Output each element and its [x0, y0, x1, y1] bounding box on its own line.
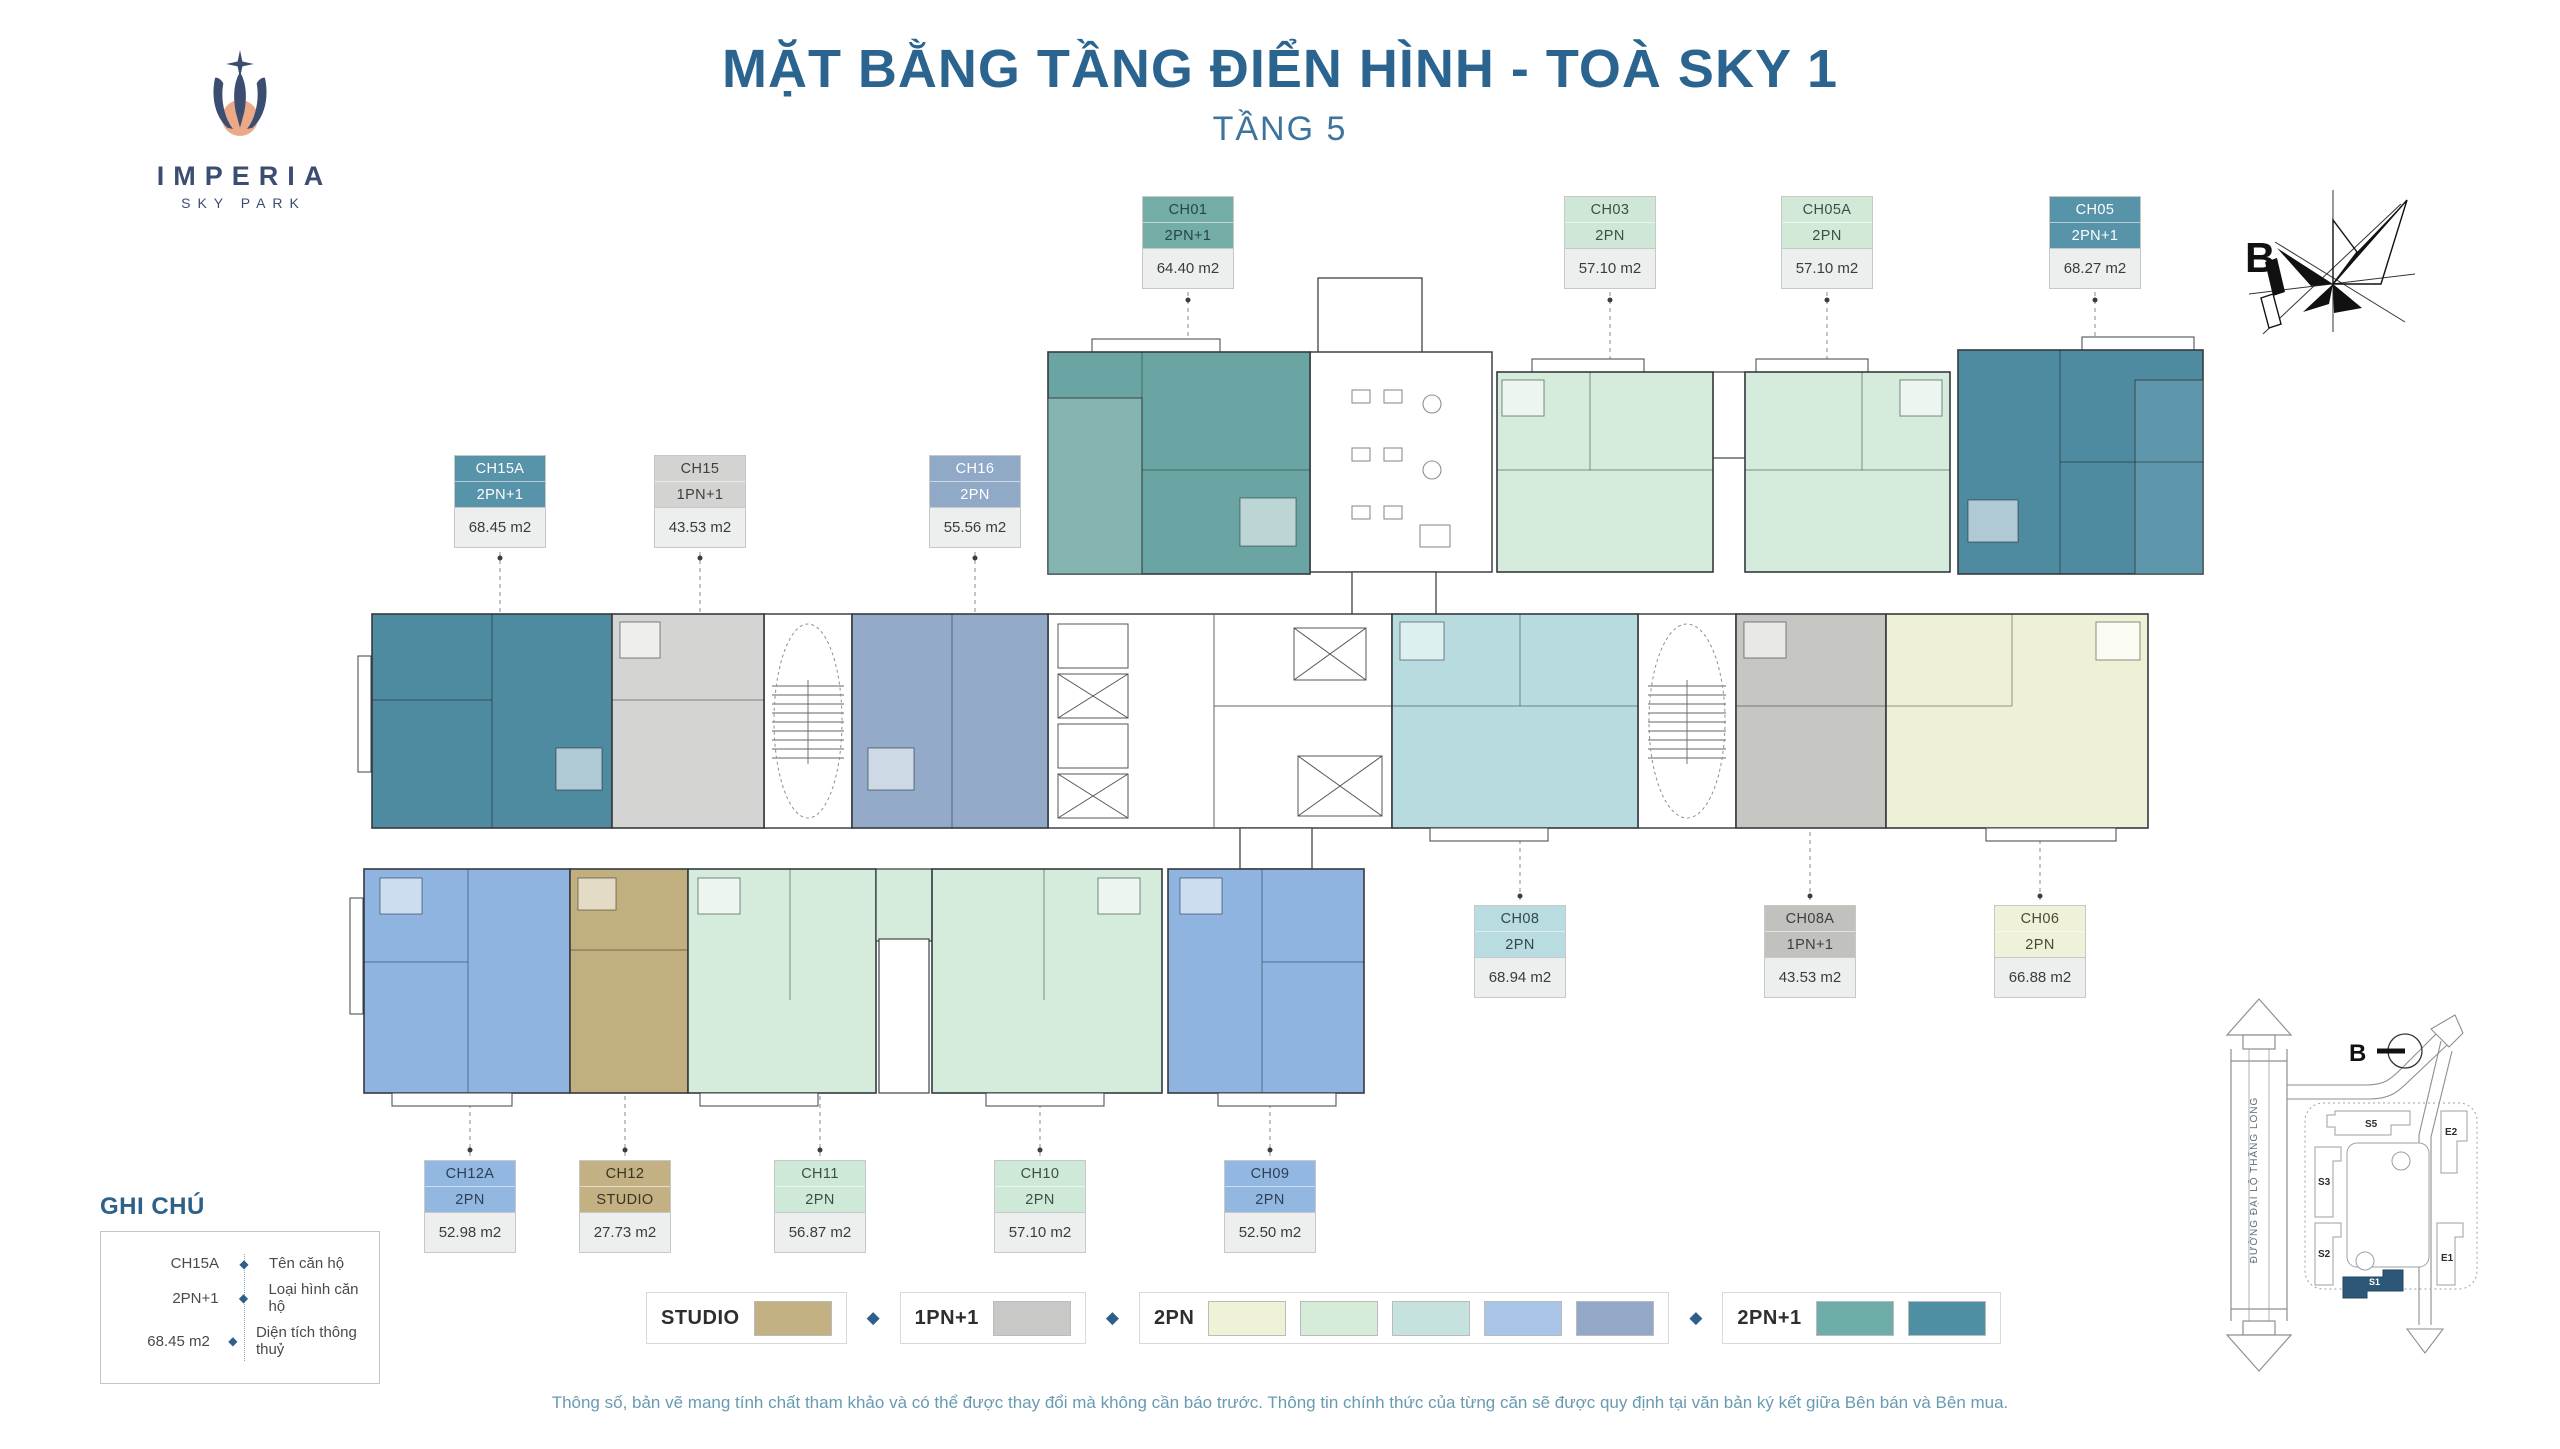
site-location-map: ĐƯỜNG ĐẠI LỘ THĂNG LONG B — [2205, 985, 2550, 1385]
color-swatch — [754, 1301, 832, 1336]
building-label-s3: S3 — [2318, 1177, 2331, 1188]
unit-label-ch08a: CH08A 1PN+1 43.53 m2 — [1764, 905, 1856, 998]
unit-code: CH06 — [1995, 906, 2085, 932]
plan-unit-ch15 — [612, 614, 764, 828]
unit-type: 2PN — [995, 1187, 1085, 1212]
plan-core-elevator-center — [1048, 614, 1392, 828]
unit-label-ch03: CH03 2PN 57.10 m2 — [1564, 196, 1656, 289]
legend-note-row: 2PN+1 ◆ Loại hình căn hộ — [101, 1281, 379, 1315]
legend-group-label: 1PN+1 — [915, 1307, 979, 1330]
unit-type: 2PN — [1782, 223, 1872, 248]
building-label-e2: E2 — [2445, 1127, 2458, 1138]
plan-core-stair-west — [764, 614, 852, 828]
unit-area: 52.98 m2 — [425, 1212, 515, 1252]
highlighted-building-s1: S1 — [2343, 1270, 2403, 1298]
plan-unit-ch05 — [1958, 337, 2203, 574]
note-key: 68.45 m2 — [101, 1333, 210, 1350]
compass-blades — [2265, 200, 2407, 313]
legend-note-title: GHI CHÚ — [100, 1193, 380, 1221]
unit-area: 57.10 m2 — [995, 1212, 1085, 1252]
legend-group-1pn1: 1PN+1 — [900, 1292, 1086, 1344]
unit-code: CH09 — [1225, 1161, 1315, 1187]
unit-type: 1PN+1 — [655, 482, 745, 507]
plan-corridor-bottom-center — [876, 869, 932, 1093]
unit-area: 52.50 m2 — [1225, 1212, 1315, 1252]
plan-notch-top — [1713, 372, 1745, 458]
unit-label-ch11: CH11 2PN 56.87 m2 — [774, 1160, 866, 1253]
plan-unit-ch08 — [1392, 614, 1638, 841]
unit-area: 68.45 m2 — [455, 507, 545, 547]
plan-unit-ch08a — [1736, 614, 1886, 828]
unit-area: 56.87 m2 — [775, 1212, 865, 1252]
building-label-s5: S5 — [2365, 1119, 2378, 1130]
plan-unit-ch01 — [1048, 339, 1310, 574]
note-label: Diện tích thông thuỷ — [256, 1324, 379, 1358]
unit-code: CH11 — [775, 1161, 865, 1187]
unit-label-ch01: CH01 2PN+1 64.40 m2 — [1142, 196, 1234, 289]
unit-area: 64.40 m2 — [1143, 248, 1233, 288]
unit-code: CH08 — [1475, 906, 1565, 932]
unit-type: 2PN — [1995, 932, 2085, 957]
plan-unit-ch09 — [1168, 869, 1364, 1106]
diamond-bullet-icon: ◆ — [219, 1291, 269, 1305]
unit-area: 57.10 m2 — [1565, 248, 1655, 288]
unit-area: 68.94 m2 — [1475, 957, 1565, 997]
plan-unit-ch16 — [852, 614, 1048, 828]
unit-label-ch15a: CH15A 2PN+1 68.45 m2 — [454, 455, 546, 548]
logo-subbrand-text: SKY PARK — [128, 195, 352, 211]
diamond-separator-icon: ◆ — [1689, 1308, 1702, 1328]
unit-label-ch05: CH05 2PN+1 68.27 m2 — [2049, 196, 2141, 289]
unit-code: CH05 — [2050, 197, 2140, 223]
title-block: MẶT BẰNG TẦNG ĐIỂN HÌNH - TOÀ SKY 1 TẦNG… — [0, 38, 2560, 149]
unit-area: 27.73 m2 — [580, 1212, 670, 1252]
plan-unit-ch12 — [570, 869, 688, 1093]
note-key: 2PN+1 — [101, 1290, 219, 1307]
legend-group-label: STUDIO — [661, 1307, 740, 1330]
unit-code: CH15 — [655, 456, 745, 482]
unit-area: 43.53 m2 — [1765, 957, 1855, 997]
note-label: Tên căn hộ — [269, 1255, 344, 1272]
unit-label-ch09: CH09 2PN 52.50 m2 — [1224, 1160, 1316, 1253]
diamond-separator-icon: ◆ — [1106, 1308, 1119, 1328]
color-swatch — [1576, 1301, 1654, 1336]
sitemap-compass-label: B — [2349, 1040, 2366, 1067]
plan-unit-ch12a — [350, 869, 570, 1106]
unit-type: 2PN — [1475, 932, 1565, 957]
unit-label-ch15: CH15 1PN+1 43.53 m2 — [654, 455, 746, 548]
diamond-bullet-icon: ◆ — [210, 1334, 256, 1348]
note-label: Loại hình căn hộ — [268, 1281, 379, 1315]
unit-code: CH10 — [995, 1161, 1085, 1187]
unit-type: 2PN+1 — [455, 482, 545, 507]
unit-type: 2PN+1 — [1143, 223, 1233, 248]
color-swatch — [1392, 1301, 1470, 1336]
unit-area: 66.88 m2 — [1995, 957, 2085, 997]
unit-type: 2PN — [425, 1187, 515, 1212]
plan-unit-ch06 — [1886, 614, 2148, 841]
unit-type: 2PN+1 — [2050, 223, 2140, 248]
color-swatch — [1484, 1301, 1562, 1336]
plan-unit-ch11 — [688, 869, 876, 1106]
plan-unit-ch03 — [1497, 359, 1713, 572]
building-label-s1: S1 — [2369, 1277, 2380, 1287]
unit-code: CH05A — [1782, 197, 1872, 223]
page-subtitle: TẦNG 5 — [0, 110, 2560, 149]
plan-core-stair-east — [1638, 614, 1736, 828]
unit-type: 1PN+1 — [1765, 932, 1855, 957]
unit-label-ch16: CH16 2PN 55.56 m2 — [929, 455, 1021, 548]
legend-note-box: CH15A ◆ Tên căn hộ 2PN+1 ◆ Loại hình căn… — [100, 1231, 380, 1384]
plan-unit-ch05a — [1745, 359, 1950, 572]
unit-label-ch05a: CH05A 2PN 57.10 m2 — [1781, 196, 1873, 289]
legend-note-row: CH15A ◆ Tên căn hộ — [101, 1255, 379, 1272]
compass-rose: B — [2235, 182, 2425, 337]
unit-type: 2PN — [930, 482, 1020, 507]
floor-plan-drawing — [300, 260, 2260, 1170]
diamond-separator-icon: ◆ — [867, 1308, 880, 1328]
legend-group-2pn1: 2PN+1 — [1722, 1292, 2000, 1344]
legend-group-label: 2PN — [1154, 1307, 1194, 1330]
color-swatch — [1208, 1301, 1286, 1336]
legend-group-label: 2PN+1 — [1737, 1307, 1801, 1330]
unit-type: 2PN — [1225, 1187, 1315, 1212]
legend-note: GHI CHÚ CH15A ◆ Tên căn hộ 2PN+1 ◆ Loại … — [100, 1193, 380, 1384]
color-swatch — [1908, 1301, 1986, 1336]
plan-core-top-lobby — [1310, 278, 1492, 572]
color-swatch — [1300, 1301, 1378, 1336]
color-legend: STUDIO ◆ 1PN+1 ◆ 2PN ◆ 2PN+1 — [646, 1292, 2001, 1344]
page-title: MẶT BẰNG TẦNG ĐIỂN HÌNH - TOÀ SKY 1 — [0, 38, 2560, 100]
color-swatch — [993, 1301, 1071, 1336]
plan-connector-bottom — [1240, 828, 1312, 869]
sitemap-compass: B — [2349, 1034, 2422, 1068]
unit-code: CH08A — [1765, 906, 1855, 932]
road-name-label: ĐƯỜNG ĐẠI LỘ THĂNG LONG — [2247, 1097, 2260, 1264]
building-label-e1: E1 — [2441, 1253, 2454, 1264]
unit-area: 57.10 m2 — [1782, 248, 1872, 288]
unit-area: 43.53 m2 — [655, 507, 745, 547]
logo-brand-text: IMPERIA — [128, 161, 352, 192]
unit-area: 55.56 m2 — [930, 507, 1020, 547]
unit-label-ch12: CH12 STUDIO 27.73 m2 — [579, 1160, 671, 1253]
disclaimer-text: Thông số, bản vẽ mang tính chất tham khả… — [0, 1393, 2560, 1413]
unit-code: CH16 — [930, 456, 1020, 482]
plan-unit-ch10 — [932, 869, 1162, 1106]
unit-label-ch10: CH10 2PN 57.10 m2 — [994, 1160, 1086, 1253]
legend-group-studio: STUDIO — [646, 1292, 847, 1344]
legend-group-2pn: 2PN — [1139, 1292, 1669, 1344]
floor-plan-page: IMPERIA SKY PARK MẶT BẰNG TẦNG ĐIỂN HÌNH… — [0, 0, 2560, 1449]
plan-connector-top — [1352, 572, 1436, 616]
color-swatch — [1816, 1301, 1894, 1336]
note-key: CH15A — [101, 1255, 219, 1272]
unit-type: 2PN — [1565, 223, 1655, 248]
unit-code: CH15A — [455, 456, 545, 482]
unit-type: 2PN — [775, 1187, 865, 1212]
plan-unit-ch15a — [358, 614, 612, 828]
unit-code: CH03 — [1565, 197, 1655, 223]
building-label-s2: S2 — [2318, 1249, 2331, 1260]
legend-note-row: 68.45 m2 ◆ Diện tích thông thuỷ — [101, 1324, 379, 1358]
unit-type: STUDIO — [580, 1187, 670, 1212]
unit-code: CH12A — [425, 1161, 515, 1187]
unit-label-ch08: CH08 2PN 68.94 m2 — [1474, 905, 1566, 998]
unit-code: CH12 — [580, 1161, 670, 1187]
unit-label-ch12a: CH12A 2PN 52.98 m2 — [424, 1160, 516, 1253]
unit-label-ch06: CH06 2PN 66.88 m2 — [1994, 905, 2086, 998]
diamond-bullet-icon: ◆ — [219, 1257, 269, 1271]
unit-code: CH01 — [1143, 197, 1233, 223]
unit-area: 68.27 m2 — [2050, 248, 2140, 288]
